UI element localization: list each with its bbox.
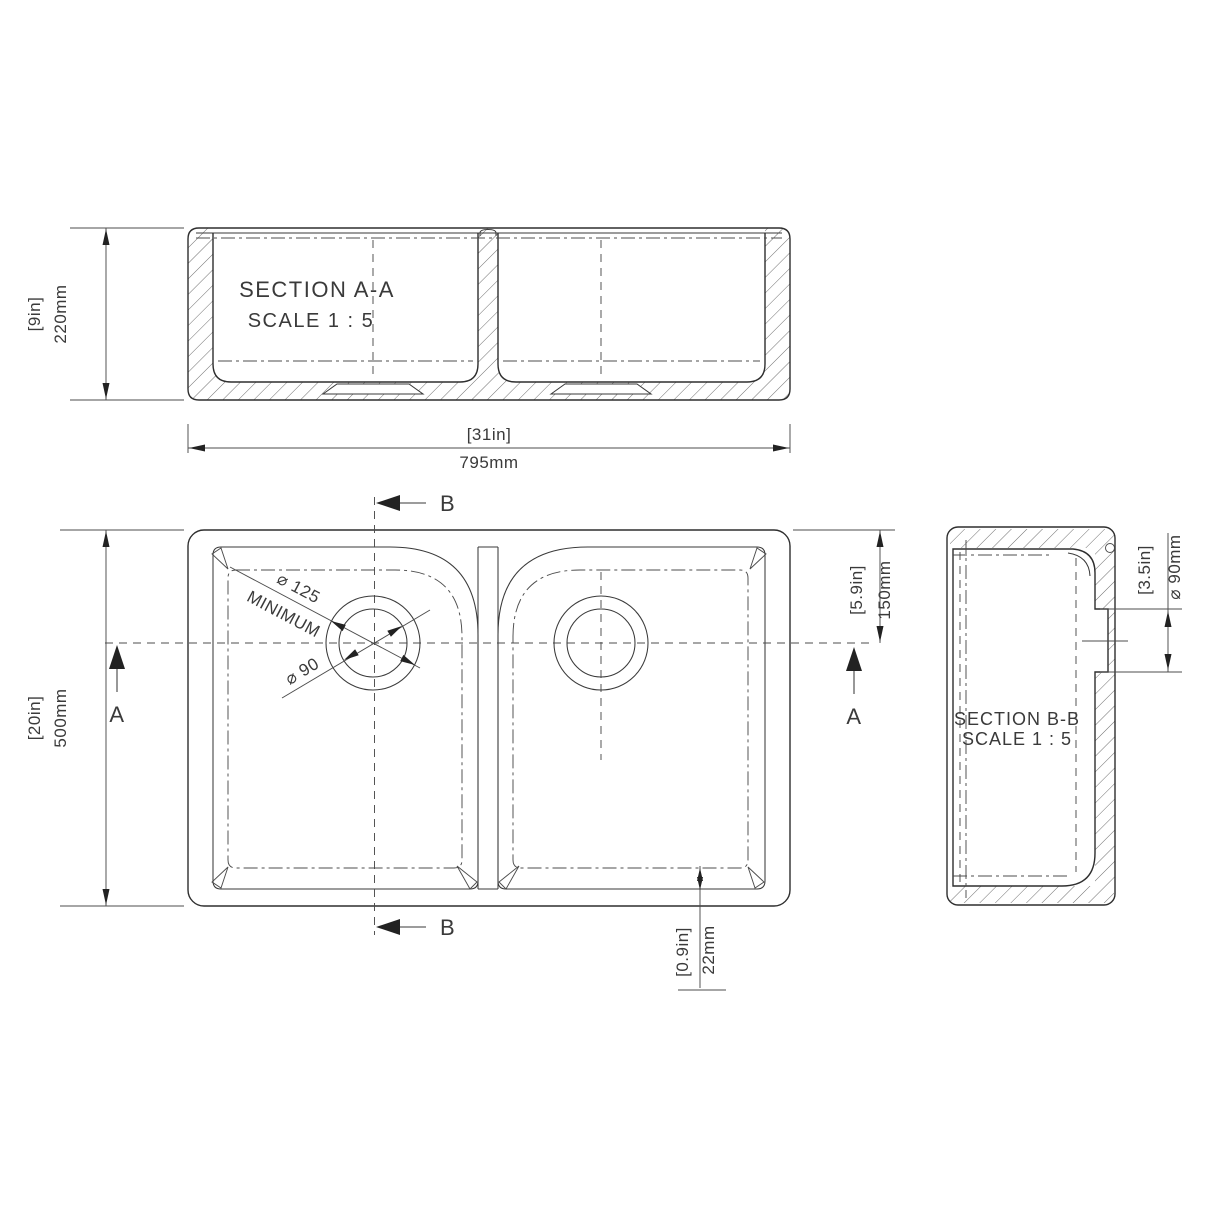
dim-drain-plan-label: ⌀ 90	[282, 654, 323, 689]
dim-wall-thickness-metric: 22mm	[699, 925, 718, 974]
dim-bowl-height-imperial: [9in]	[25, 297, 44, 332]
marker-b-bottom-label: B	[440, 915, 455, 940]
dim-arrow-down	[103, 889, 110, 905]
dim-arrow-left	[189, 445, 205, 452]
section-bb-title: SECTION B-B	[954, 709, 1080, 729]
dim-overall-width: [31in] 795mm	[188, 424, 790, 472]
dim-arrow-down	[1165, 654, 1172, 670]
section-bb-view: SECTION B-B SCALE 1 : 5	[947, 527, 1128, 905]
dim-overall-width-metric: 795mm	[459, 453, 518, 472]
dim-overall-width-imperial: [31in]	[467, 425, 512, 444]
dim-drain-offset-metric: 150mm	[875, 560, 894, 619]
section-bb-scale: SCALE 1 : 5	[962, 729, 1072, 749]
plan-bowl-left-floor	[228, 570, 462, 868]
marker-a-left-arrow	[109, 645, 125, 669]
dim-arrow-down	[697, 877, 703, 890]
dim-arrow-drain-1	[387, 626, 402, 637]
dim-bowl-height-lines	[70, 228, 184, 400]
section-marker-b-bottom: B	[376, 915, 455, 940]
dim-overall-depth: [20in] 500mm	[25, 530, 184, 906]
marker-b-top-arrow	[376, 495, 400, 511]
marker-b-top-label: B	[440, 491, 455, 516]
marker-a-right-arrow	[846, 647, 862, 671]
marker-b-bottom-arrow	[376, 919, 400, 935]
marker-a-right-label: A	[846, 704, 861, 729]
section-aa-title: SECTION A-A	[239, 277, 395, 302]
section-aa-view: SECTION A-A SCALE 1 : 5	[188, 228, 790, 400]
dim-arrow-drain-2	[344, 649, 359, 660]
dim-drain-bb-metric: ⌀ 90mm	[1165, 534, 1184, 599]
dim-bowl-height: [9in] 220mm	[25, 228, 184, 400]
dim-overall-depth-imperial: [20in]	[25, 696, 44, 741]
dim-arrow-waste-2	[400, 655, 415, 665]
section-aa-bowl-left-profile	[213, 233, 478, 382]
plan-bowl-right-floor	[513, 570, 748, 868]
drawing-sheet: SECTION A-A SCALE 1 : 5 [9in] 220mm [31i…	[0, 0, 1214, 1214]
dim-drain-offset-imperial: [5.9in]	[847, 565, 866, 615]
dim-arrow-right	[773, 445, 789, 452]
dim-drain-offset: [5.9in] 150mm	[793, 530, 895, 643]
dim-arrow-down	[103, 383, 110, 399]
dim-wall-thickness: [0.9in] 22mm	[673, 866, 726, 990]
section-aa-bowl-right-profile	[498, 233, 765, 382]
marker-a-left-label: A	[109, 702, 124, 727]
plan-divider	[478, 547, 498, 889]
dim-arrow-up	[103, 531, 110, 547]
plan-view	[105, 497, 872, 935]
section-aa-recess-left	[323, 384, 423, 394]
plan-bowl-right-opening	[498, 547, 765, 889]
section-marker-a-right: A	[846, 647, 862, 729]
dim-arrow-up	[1165, 611, 1172, 627]
dim-arrow-up	[103, 229, 110, 245]
technical-drawing-canvas: SECTION A-A SCALE 1 : 5 [9in] 220mm [31i…	[0, 0, 1214, 1214]
dim-arrow-waste-1	[331, 621, 346, 631]
dim-arrow-up	[877, 531, 884, 547]
dim-bowl-height-metric: 220mm	[51, 284, 70, 343]
section-aa-recess-right	[551, 384, 651, 394]
dim-waste-leader	[230, 567, 420, 668]
section-bb-rim-thickness-arc	[1068, 553, 1090, 576]
dim-arrow-down	[877, 626, 884, 642]
section-marker-a-left: A	[109, 645, 125, 727]
dim-wall-thickness-imperial: [0.9in]	[673, 927, 692, 977]
section-marker-b-top: B	[376, 491, 455, 516]
plan-corner-details	[212, 548, 766, 889]
dim-overall-depth-metric: 500mm	[51, 688, 70, 747]
dim-drain-bb-imperial: [3.5in]	[1135, 545, 1154, 595]
section-aa-scale: SCALE 1 : 5	[248, 310, 375, 332]
dim-waste-clearance: ⌀ 125 MINIMUM	[230, 567, 420, 668]
